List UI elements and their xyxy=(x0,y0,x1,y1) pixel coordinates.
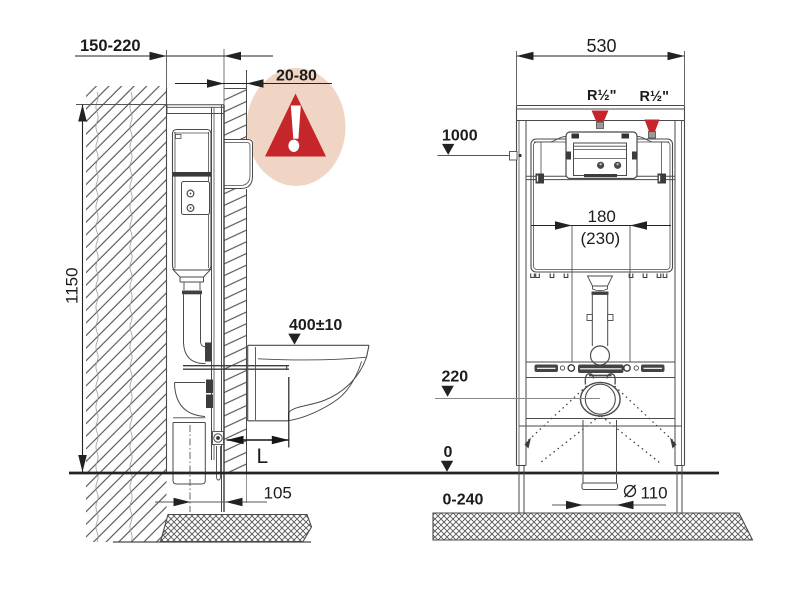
svg-text:400±10: 400±10 xyxy=(289,317,342,334)
svg-text:R½": R½" xyxy=(587,88,616,104)
svg-text:1150: 1150 xyxy=(63,267,82,304)
svg-text:1000: 1000 xyxy=(442,128,478,145)
svg-text:0-240: 0-240 xyxy=(443,492,484,509)
svg-text:(230): (230) xyxy=(581,229,621,248)
svg-text:110: 110 xyxy=(641,484,668,503)
svg-text:R½": R½" xyxy=(640,89,669,105)
svg-text:0: 0 xyxy=(444,444,453,461)
svg-text:530: 530 xyxy=(587,36,617,56)
svg-text:105: 105 xyxy=(264,484,292,503)
svg-text:180: 180 xyxy=(588,207,616,226)
svg-text:220: 220 xyxy=(442,369,469,386)
svg-text:150-220: 150-220 xyxy=(80,37,141,55)
svg-text:20-80: 20-80 xyxy=(276,68,317,85)
svg-text:L: L xyxy=(257,445,269,468)
